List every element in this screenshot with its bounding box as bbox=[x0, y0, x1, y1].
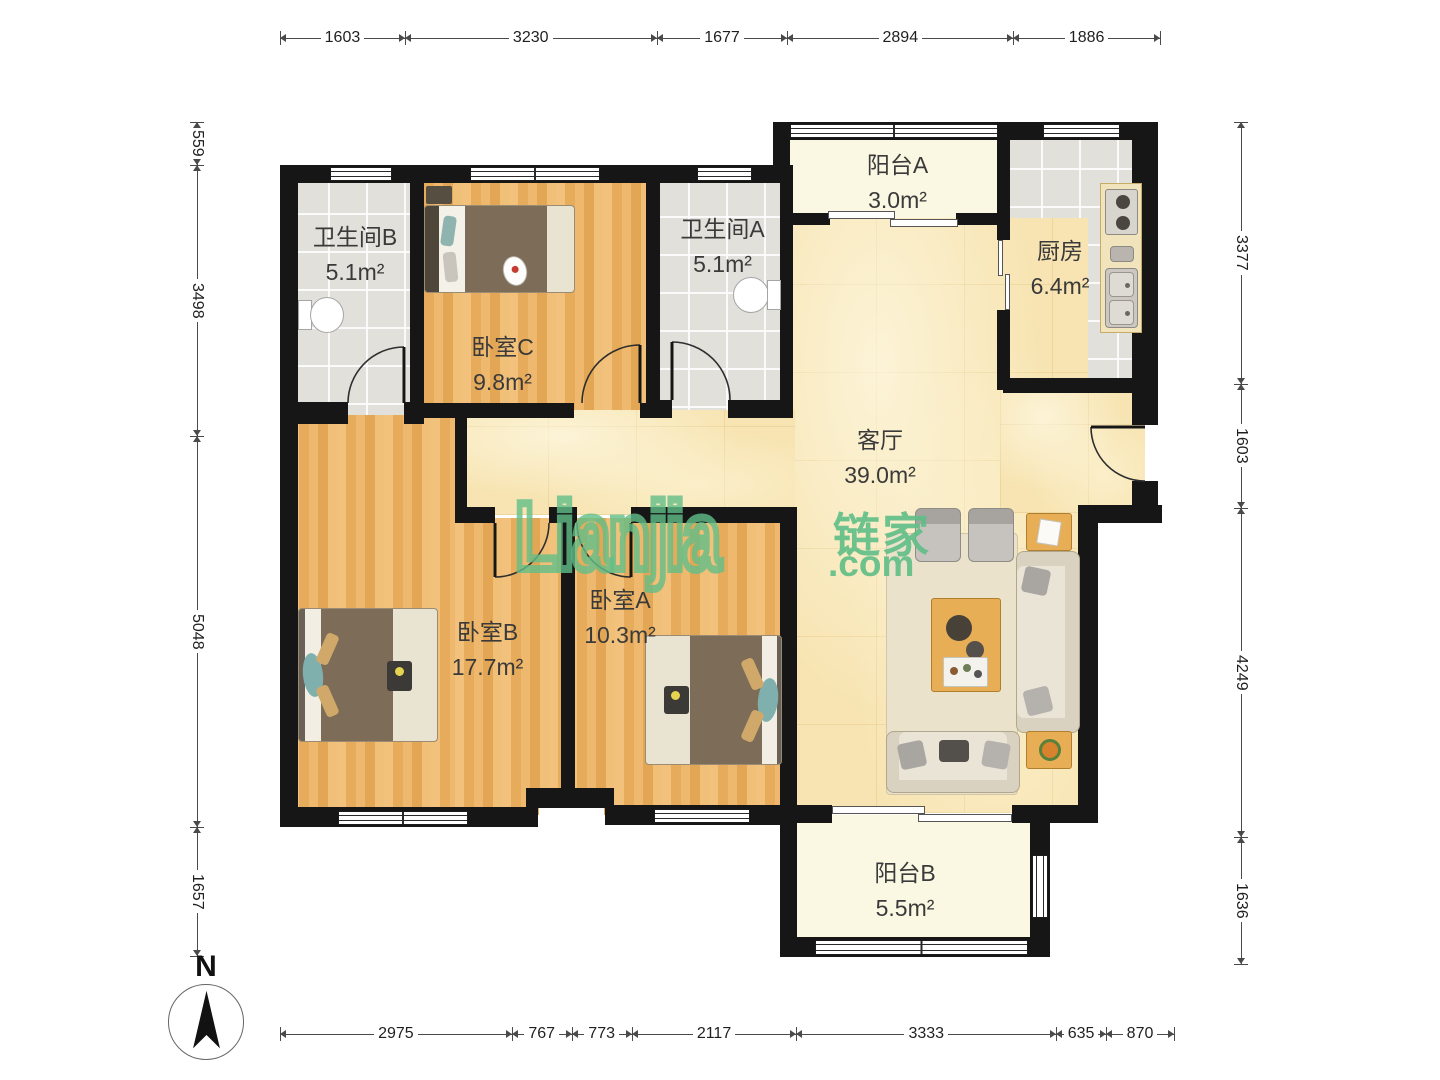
sofa-long bbox=[1016, 551, 1080, 733]
dim-value: 2975 bbox=[374, 1026, 418, 1042]
window bbox=[338, 811, 468, 825]
cup bbox=[963, 664, 971, 672]
compass: N bbox=[166, 952, 246, 1060]
room-area: 5.5m² bbox=[810, 891, 1000, 926]
coffee-table bbox=[931, 598, 1001, 692]
room-label-bedroom-c: 卧室C 9.8m² bbox=[420, 330, 585, 399]
sliding-door bbox=[832, 806, 925, 814]
burner bbox=[1116, 216, 1130, 230]
sofa-pillow bbox=[981, 740, 1011, 770]
window bbox=[1032, 855, 1048, 918]
window bbox=[790, 124, 998, 138]
toilet-bathroom-b bbox=[298, 296, 346, 334]
window bbox=[1043, 124, 1120, 138]
room-name: 客厅 bbox=[795, 423, 965, 458]
wall-segment bbox=[997, 140, 1010, 240]
decor-dot bbox=[511, 265, 519, 273]
wall-segment bbox=[780, 805, 797, 945]
window bbox=[654, 809, 750, 823]
plant bbox=[1039, 739, 1061, 761]
wall-segment bbox=[455, 407, 467, 523]
room-label-living-room: 客厅 39.0m² bbox=[795, 423, 965, 492]
wall-segment bbox=[424, 403, 574, 418]
sliding-door bbox=[918, 814, 1012, 822]
dim-value: 559 bbox=[189, 126, 205, 161]
compass-needle-icon bbox=[170, 985, 243, 1058]
sofa-pillow bbox=[1021, 566, 1052, 597]
toilet-bowl bbox=[310, 297, 344, 333]
room-label-balcony-b: 阳台B 5.5m² bbox=[810, 856, 1000, 925]
dim-value: 870 bbox=[1123, 1026, 1158, 1042]
dim-value: 1886 bbox=[1065, 30, 1109, 46]
tea-tray bbox=[943, 657, 988, 687]
toilet-tank bbox=[767, 280, 781, 310]
dimensions-left: 559 3498 5048 1657 bbox=[188, 122, 206, 957]
window bbox=[470, 167, 600, 181]
dim-value: 3498 bbox=[189, 279, 205, 323]
hallway-floor bbox=[460, 410, 795, 515]
dim-value: 1657 bbox=[189, 870, 205, 914]
pillow bbox=[740, 709, 765, 744]
bowl-decor bbox=[946, 615, 972, 641]
compass-circle bbox=[168, 984, 244, 1060]
wall-segment bbox=[549, 507, 577, 523]
pillow bbox=[315, 632, 340, 667]
dim-value: 4249 bbox=[1233, 651, 1249, 695]
window bbox=[815, 940, 1028, 955]
room-label-balcony-a: 阳台A 3.0m² bbox=[800, 148, 995, 217]
dimensions-bottom: 2975 767 773 2117 3333 635 870 bbox=[280, 1025, 1175, 1043]
wall-segment bbox=[631, 507, 793, 523]
wall-segment bbox=[404, 402, 424, 424]
room-name: 阳台A bbox=[800, 148, 995, 183]
toilet-bowl bbox=[733, 277, 769, 313]
room-area: 5.1m² bbox=[655, 247, 790, 282]
nightstand bbox=[426, 186, 452, 204]
sofa-pillow bbox=[897, 740, 928, 771]
bed-bedroom-c bbox=[424, 205, 575, 293]
compass-north-label: N bbox=[166, 952, 246, 982]
room-area: 3.0m² bbox=[800, 183, 995, 218]
dim-value: 635 bbox=[1064, 1026, 1099, 1042]
side-table bbox=[1026, 731, 1072, 769]
dim-value: 1603 bbox=[321, 30, 365, 46]
entry-floor bbox=[1000, 385, 1145, 513]
room-label-bathroom-a: 卫生间A 5.1m² bbox=[655, 212, 790, 281]
dim-value: 1636 bbox=[1233, 879, 1249, 923]
room-name: 卫生间B bbox=[280, 220, 430, 255]
cup bbox=[950, 667, 958, 675]
pillow bbox=[440, 215, 457, 247]
bed-bedroom-a bbox=[645, 635, 782, 765]
dimensions-right: 3377 1603 4249 1636 bbox=[1232, 122, 1250, 965]
cup bbox=[974, 670, 982, 678]
sofa-small bbox=[886, 731, 1020, 793]
dim-value: 3333 bbox=[904, 1026, 948, 1042]
pillow bbox=[442, 251, 458, 282]
burner bbox=[1116, 195, 1130, 209]
wall-segment bbox=[646, 400, 672, 418]
drain bbox=[1125, 283, 1130, 288]
dim-value: 3377 bbox=[1233, 231, 1249, 275]
dimensions-top: 1603 3230 1677 2894 1886 bbox=[280, 29, 1161, 47]
armchair bbox=[968, 508, 1014, 562]
room-label-bedroom-a: 卧室A 10.3m² bbox=[540, 583, 700, 652]
room-label-bathroom-b: 卫生间B 5.1m² bbox=[280, 220, 430, 289]
dim-value: 2894 bbox=[879, 30, 923, 46]
wall-segment bbox=[1003, 378, 1158, 393]
room-label-kitchen: 厨房 6.4m² bbox=[1005, 234, 1115, 303]
floor-plan: 卫生间B 5.1m² 卧室C 9.8m² 卫生间A 5.1m² 阳台A 3.0m… bbox=[0, 0, 1440, 1080]
room-area: 10.3m² bbox=[540, 618, 700, 653]
room-name: 厨房 bbox=[1005, 234, 1115, 269]
side-table bbox=[1026, 513, 1072, 551]
wall-segment bbox=[1012, 805, 1098, 823]
bed-tray bbox=[664, 686, 689, 714]
pillow bbox=[315, 684, 340, 719]
window bbox=[330, 167, 392, 181]
sofa-cushion bbox=[939, 740, 969, 762]
room-area: 39.0m² bbox=[795, 458, 965, 493]
room-area: 6.4m² bbox=[1005, 269, 1115, 304]
room-area: 5.1m² bbox=[280, 255, 430, 290]
room-area: 17.7m² bbox=[400, 650, 575, 685]
room-name: 卧室A bbox=[540, 583, 700, 618]
room-name: 卫生间A bbox=[655, 212, 790, 247]
sliding-door bbox=[890, 219, 958, 227]
drain bbox=[1125, 311, 1130, 316]
pillow bbox=[740, 657, 765, 692]
sofa-pillow bbox=[1022, 685, 1054, 717]
basin bbox=[1109, 300, 1134, 325]
kitchen-sliding-door bbox=[998, 240, 1003, 276]
facade-notch bbox=[539, 806, 604, 830]
room-name: 阳台B bbox=[810, 856, 1000, 891]
wall-segment bbox=[793, 805, 832, 823]
toilet-bathroom-a bbox=[733, 276, 781, 314]
room-name: 卧室C bbox=[420, 330, 585, 365]
stove bbox=[1105, 189, 1138, 235]
window bbox=[697, 167, 752, 181]
room-area: 9.8m² bbox=[420, 365, 585, 400]
wall-segment bbox=[280, 402, 348, 424]
wall-segment bbox=[1078, 505, 1098, 823]
tray-dot bbox=[671, 691, 680, 700]
bathroom-b-floor bbox=[290, 175, 420, 415]
dim-value: 3230 bbox=[509, 30, 553, 46]
dim-value: 1677 bbox=[700, 30, 744, 46]
dim-value: 1603 bbox=[1233, 424, 1249, 468]
wall-segment bbox=[780, 507, 797, 807]
dim-value: 2117 bbox=[693, 1026, 735, 1042]
dim-value: 767 bbox=[524, 1026, 559, 1042]
wall-segment bbox=[455, 507, 495, 523]
dim-value: 5048 bbox=[189, 610, 205, 654]
paper-decor bbox=[1036, 518, 1062, 546]
armchair bbox=[915, 508, 961, 562]
dim-value: 773 bbox=[584, 1026, 619, 1042]
